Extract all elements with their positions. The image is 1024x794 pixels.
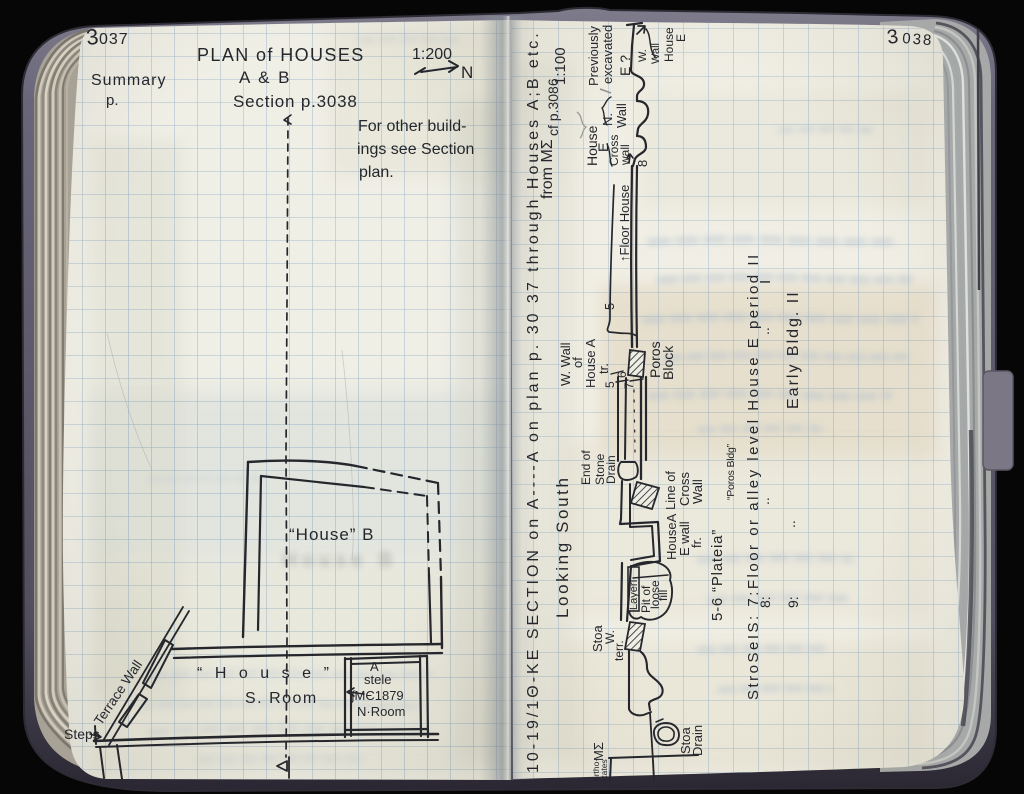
svg-text:N·Room: N·Room — [357, 704, 405, 719]
svg-text:End of: End of — [579, 450, 593, 485]
svg-text:Summary: Summary — [91, 72, 166, 89]
svg-text:∫MЄ1879: ∫MЄ1879 — [350, 688, 404, 703]
svg-text:E: E — [674, 34, 688, 42]
svg-text:N: N — [461, 63, 473, 82]
svg-text:For other build-: For other build- — [358, 118, 467, 135]
svg-text:Early Bldg. II: Early Bldg. II — [785, 290, 802, 409]
svg-text:I: I — [757, 280, 774, 284]
svg-text:Wall: Wall — [614, 103, 629, 128]
svg-text:N.: N. — [600, 113, 615, 126]
svg-text:..: .. — [782, 520, 798, 528]
svg-text:states: states — [599, 759, 609, 782]
svg-text:1:100: 1:100 — [552, 47, 569, 85]
svg-text:p.: p. — [106, 92, 119, 109]
svg-text:↑Floor House: ↑Floor House — [617, 185, 632, 262]
svg-text:8:: 8: — [757, 596, 773, 608]
svg-text:“Poros Bldg”: “Poros Bldg” — [725, 443, 737, 500]
svg-text:MΣ: MΣ — [591, 742, 606, 761]
svg-text:“House” B: “House” B — [289, 525, 375, 544]
svg-text:House: House — [662, 27, 676, 62]
svg-text:7: 7 — [622, 382, 636, 389]
svg-text:..: .. — [756, 497, 772, 505]
svg-text:Line of: Line of — [663, 471, 678, 510]
svg-text:tr.: tr. — [596, 363, 611, 374]
svg-text:5: 5 — [602, 303, 617, 310]
svg-text:1:200: 1:200 — [412, 46, 452, 63]
svg-text:excavated: excavated — [600, 25, 615, 84]
svg-text:3: 3 — [85, 24, 100, 50]
svg-text:5: 5 — [603, 381, 617, 388]
svg-text:stele: stele — [364, 672, 391, 687]
svg-text:Block: Block — [660, 345, 676, 380]
svg-text:Wall: Wall — [690, 479, 705, 504]
svg-text:..: .. — [756, 327, 772, 335]
svg-text:StroSeIS: 7:Floor or alley lev: StroSeIS: 7:Floor or alley level House E… — [745, 252, 762, 700]
svg-text:“House”: “House” — [197, 665, 341, 682]
svg-text:038: 038 — [902, 30, 934, 49]
svg-text:PLAN of HOUSES: PLAN of HOUSES — [197, 45, 365, 65]
svg-text:5-6 “Plateia”: 5-6 “Plateia” — [709, 529, 726, 621]
svg-text:Wall: Wall — [650, 43, 662, 64]
svg-text:terr.: terr. — [612, 640, 626, 661]
svg-text:cf p.3086: cf p.3086 — [545, 78, 561, 136]
svg-text:Previously: Previously — [586, 26, 601, 86]
svg-text:9:: 9: — [785, 596, 801, 608]
svg-text:A & B: A & B — [239, 68, 292, 87]
svg-text:wall: wall — [618, 144, 632, 166]
svg-text:ings see Section: ings see Section — [357, 141, 474, 158]
svg-text:from MΣ: from MΣ — [539, 139, 556, 199]
svg-text:Drain: Drain — [690, 725, 705, 756]
svg-text:fr.: fr. — [689, 537, 704, 548]
svg-text:S. Room: S. Room — [245, 690, 318, 707]
svg-text:fill: fill — [656, 590, 670, 601]
svg-text:Section p.3038: Section p.3038 — [233, 92, 358, 111]
svg-text:037: 037 — [99, 31, 129, 48]
svg-text:Looking South: Looking South — [553, 476, 572, 619]
svg-text:W.: W. — [637, 49, 649, 62]
svg-text:Drain: Drain — [604, 455, 618, 484]
svg-text:plan.: plan. — [359, 164, 394, 181]
